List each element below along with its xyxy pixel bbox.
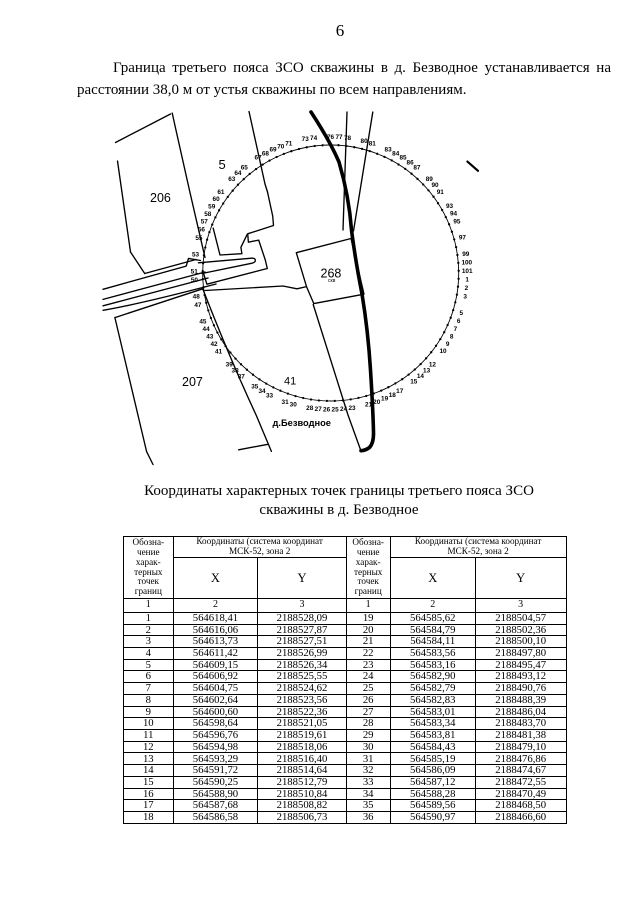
svg-text:28: 28: [306, 405, 314, 412]
svg-text:38: 38: [232, 368, 240, 375]
svg-text:47: 47: [194, 302, 202, 309]
svg-text:5: 5: [219, 157, 226, 172]
svg-text:31: 31: [282, 399, 290, 406]
svg-text:42: 42: [210, 341, 218, 348]
svg-text:30: 30: [290, 402, 298, 409]
svg-text:95: 95: [453, 218, 461, 225]
svg-text:2: 2: [465, 285, 469, 292]
svg-text:7: 7: [454, 326, 458, 333]
svg-text:77: 77: [335, 134, 343, 141]
svg-text:скв: скв: [328, 278, 336, 284]
svg-text:50: 50: [191, 277, 199, 284]
svg-text:51: 51: [191, 268, 199, 275]
svg-text:д.Безводное: д.Безводное: [273, 418, 331, 428]
svg-text:17: 17: [396, 388, 404, 395]
svg-text:58: 58: [204, 211, 212, 218]
svg-text:34: 34: [258, 388, 266, 395]
svg-text:69: 69: [269, 147, 277, 154]
svg-text:24: 24: [340, 406, 348, 413]
svg-text:71: 71: [285, 140, 293, 147]
svg-text:87: 87: [413, 164, 421, 171]
svg-text:68: 68: [262, 150, 270, 157]
svg-text:100: 100: [461, 260, 472, 267]
svg-text:206: 206: [150, 191, 171, 205]
svg-text:37: 37: [238, 373, 246, 380]
svg-text:48: 48: [193, 294, 201, 301]
svg-text:70: 70: [277, 143, 285, 150]
svg-text:99: 99: [462, 251, 470, 258]
svg-text:20: 20: [373, 399, 381, 406]
svg-text:81: 81: [369, 140, 377, 147]
svg-text:80: 80: [361, 138, 369, 145]
svg-text:61: 61: [217, 189, 225, 196]
svg-text:101: 101: [462, 268, 473, 275]
svg-text:25: 25: [332, 407, 340, 414]
svg-text:6: 6: [457, 318, 461, 325]
svg-text:23: 23: [348, 405, 356, 412]
svg-text:33: 33: [266, 392, 274, 399]
svg-text:14: 14: [417, 373, 425, 380]
svg-text:35: 35: [251, 384, 259, 391]
svg-text:1: 1: [465, 277, 469, 284]
svg-text:73: 73: [302, 136, 310, 143]
svg-text:26: 26: [323, 407, 331, 414]
svg-text:8: 8: [450, 333, 454, 340]
svg-text:94: 94: [450, 211, 458, 218]
svg-text:18: 18: [389, 392, 397, 399]
svg-text:3: 3: [463, 293, 467, 300]
svg-text:43: 43: [206, 334, 214, 341]
svg-text:83: 83: [385, 147, 393, 154]
svg-text:15: 15: [410, 379, 418, 386]
svg-text:65: 65: [241, 165, 249, 172]
svg-text:41: 41: [284, 376, 296, 388]
svg-text:53: 53: [192, 251, 200, 258]
svg-text:19: 19: [381, 396, 389, 403]
svg-text:76: 76: [327, 134, 335, 141]
svg-text:9: 9: [446, 341, 450, 348]
svg-text:63: 63: [228, 176, 236, 183]
svg-text:60: 60: [213, 196, 221, 203]
svg-text:97: 97: [459, 235, 467, 242]
svg-text:21: 21: [365, 401, 373, 408]
svg-text:91: 91: [437, 189, 445, 196]
svg-text:13: 13: [423, 367, 431, 374]
svg-text:59: 59: [208, 203, 216, 210]
svg-text:39: 39: [226, 362, 234, 369]
svg-text:93: 93: [446, 203, 454, 210]
svg-text:56: 56: [198, 227, 206, 234]
svg-text:207: 207: [182, 375, 203, 389]
svg-text:10: 10: [439, 348, 447, 355]
svg-text:5: 5: [460, 310, 464, 317]
svg-text:78: 78: [344, 135, 352, 142]
svg-text:74: 74: [310, 135, 318, 142]
svg-text:27: 27: [315, 406, 323, 413]
svg-text:57: 57: [201, 219, 209, 226]
svg-text:45: 45: [199, 318, 207, 325]
svg-text:55: 55: [195, 235, 203, 242]
svg-text:41: 41: [215, 348, 223, 355]
svg-text:44: 44: [203, 326, 211, 333]
